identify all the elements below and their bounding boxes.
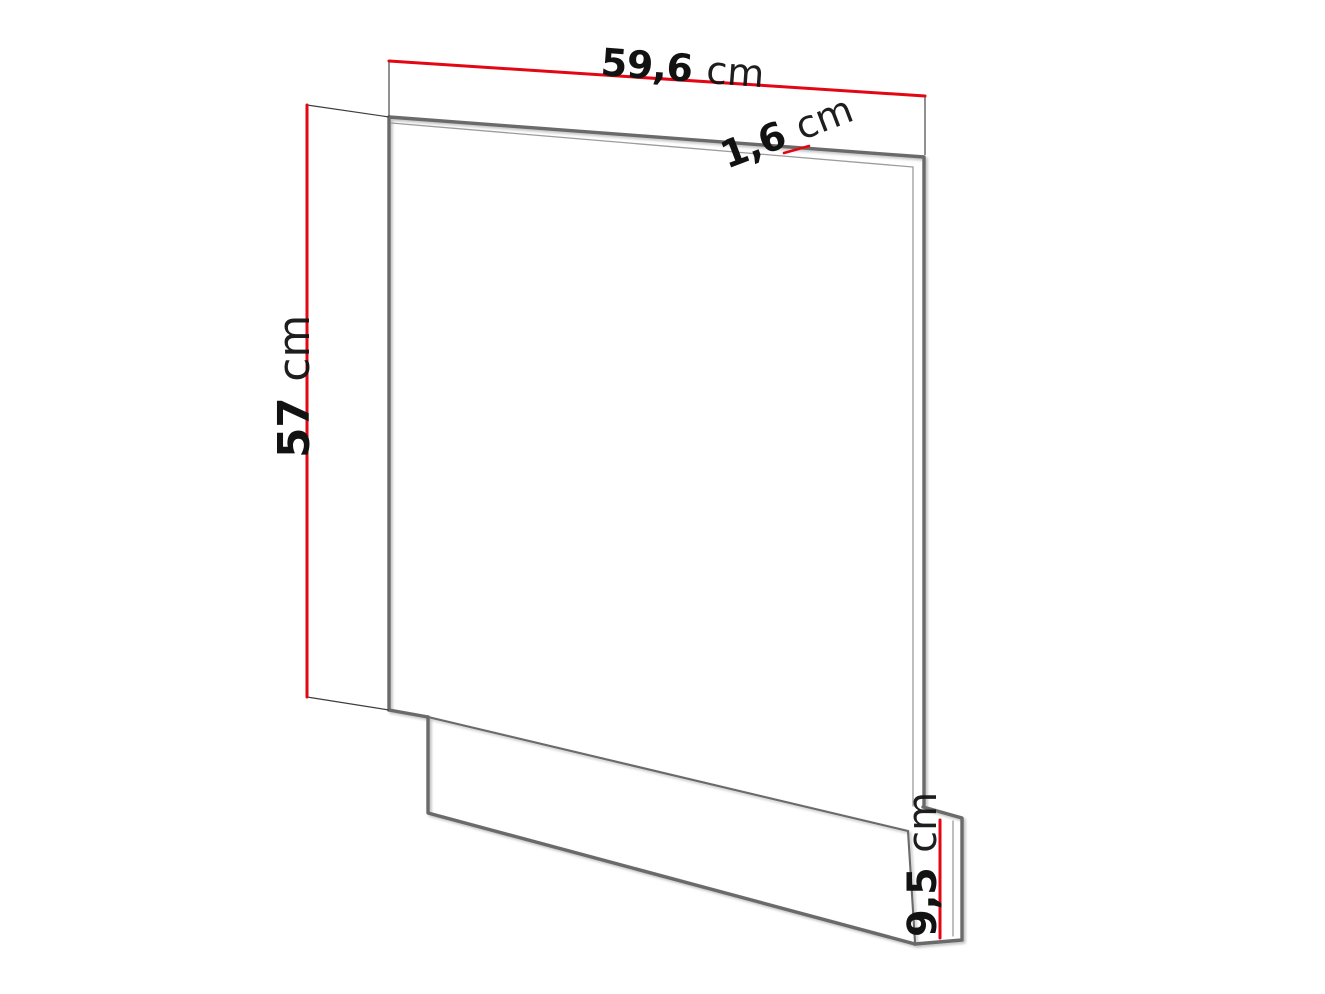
width-dimension-label: 59,6 cm xyxy=(599,40,766,96)
plinth-height-unit: cm xyxy=(900,792,946,853)
dimension-lines xyxy=(307,61,940,938)
width-unit: cm xyxy=(705,48,766,96)
height-value: 57 xyxy=(269,398,320,458)
panel-thickness-lines xyxy=(391,123,953,936)
panel-plinth-shared-edge xyxy=(428,717,908,831)
thickness-unit: cm xyxy=(789,87,859,149)
height-unit: cm xyxy=(269,315,320,382)
dimension-labels: 59,6 cm 1,6 cm 57 cm 9,5 cm xyxy=(269,40,946,937)
width-value: 59,6 xyxy=(599,40,694,91)
plinth-height-dimension-label: 9,5 cm xyxy=(900,792,946,937)
height-dimension-label: 57 cm xyxy=(269,315,320,458)
panel-drawing xyxy=(389,117,962,944)
height-extension-bottom xyxy=(307,697,389,710)
plinth-outline xyxy=(428,717,915,944)
plinth-height-value: 9,5 xyxy=(900,868,946,937)
diagram-page: { "figure": { "kind": "furniture-panel-d… xyxy=(0,0,1325,994)
height-extension-top xyxy=(307,105,389,117)
thickness-dimension-label: 1,6 cm xyxy=(714,87,858,177)
panel-bottom-step-edge xyxy=(389,710,428,717)
door-panel-outline xyxy=(389,117,924,806)
thickness-value: 1,6 xyxy=(714,113,791,178)
dimension-diagram: 59,6 cm 1,6 cm 57 cm 9,5 cm xyxy=(0,0,1325,994)
